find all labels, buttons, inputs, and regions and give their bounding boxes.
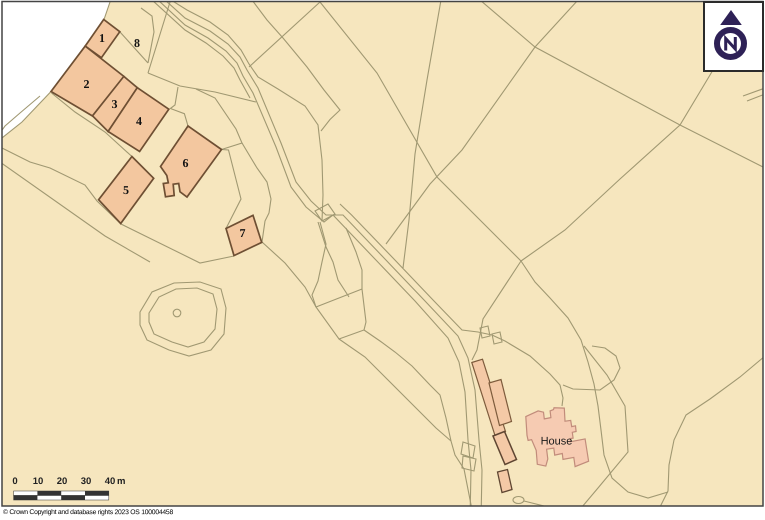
svg-text:m: m [117, 476, 125, 487]
svg-text:6: 6 [182, 156, 188, 170]
svg-text:20: 20 [57, 476, 68, 487]
svg-text:1: 1 [99, 31, 105, 45]
svg-text:5: 5 [123, 183, 129, 197]
svg-text:3: 3 [111, 97, 117, 111]
svg-text:8: 8 [134, 36, 140, 50]
svg-text:30: 30 [81, 476, 92, 487]
svg-text:© Crown Copyright and database: © Crown Copyright and database rights 20… [3, 508, 173, 516]
svg-text:0: 0 [12, 476, 17, 487]
svg-text:4: 4 [136, 114, 142, 128]
svg-text:7: 7 [239, 226, 245, 240]
svg-text:House: House [541, 435, 573, 447]
svg-text:2: 2 [83, 77, 89, 91]
svg-text:10: 10 [33, 476, 44, 487]
svg-text:40: 40 [105, 476, 116, 487]
